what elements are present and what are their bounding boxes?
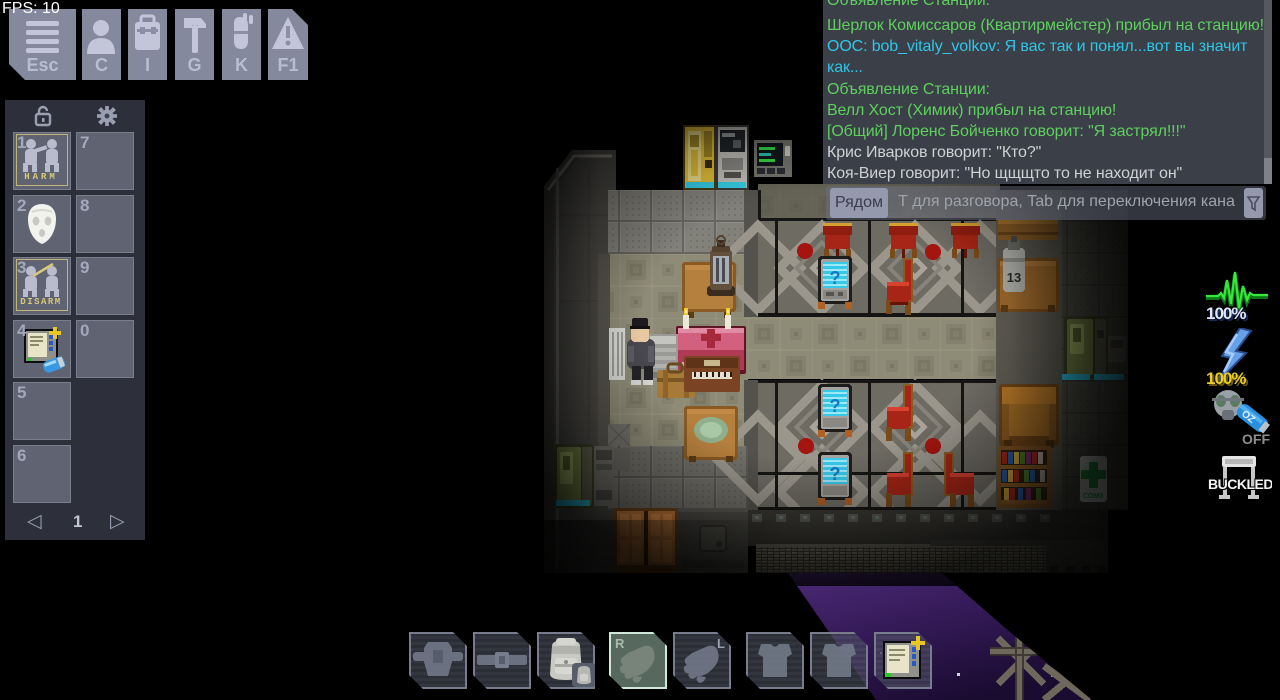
svg-text:100%: 100%	[1206, 304, 1246, 323]
svg-text:100%: 100%	[1206, 369, 1246, 388]
svg-text:BUCKLED: BUCKLED	[1208, 476, 1272, 492]
svg-text:OFF: OFF	[1242, 431, 1270, 447]
